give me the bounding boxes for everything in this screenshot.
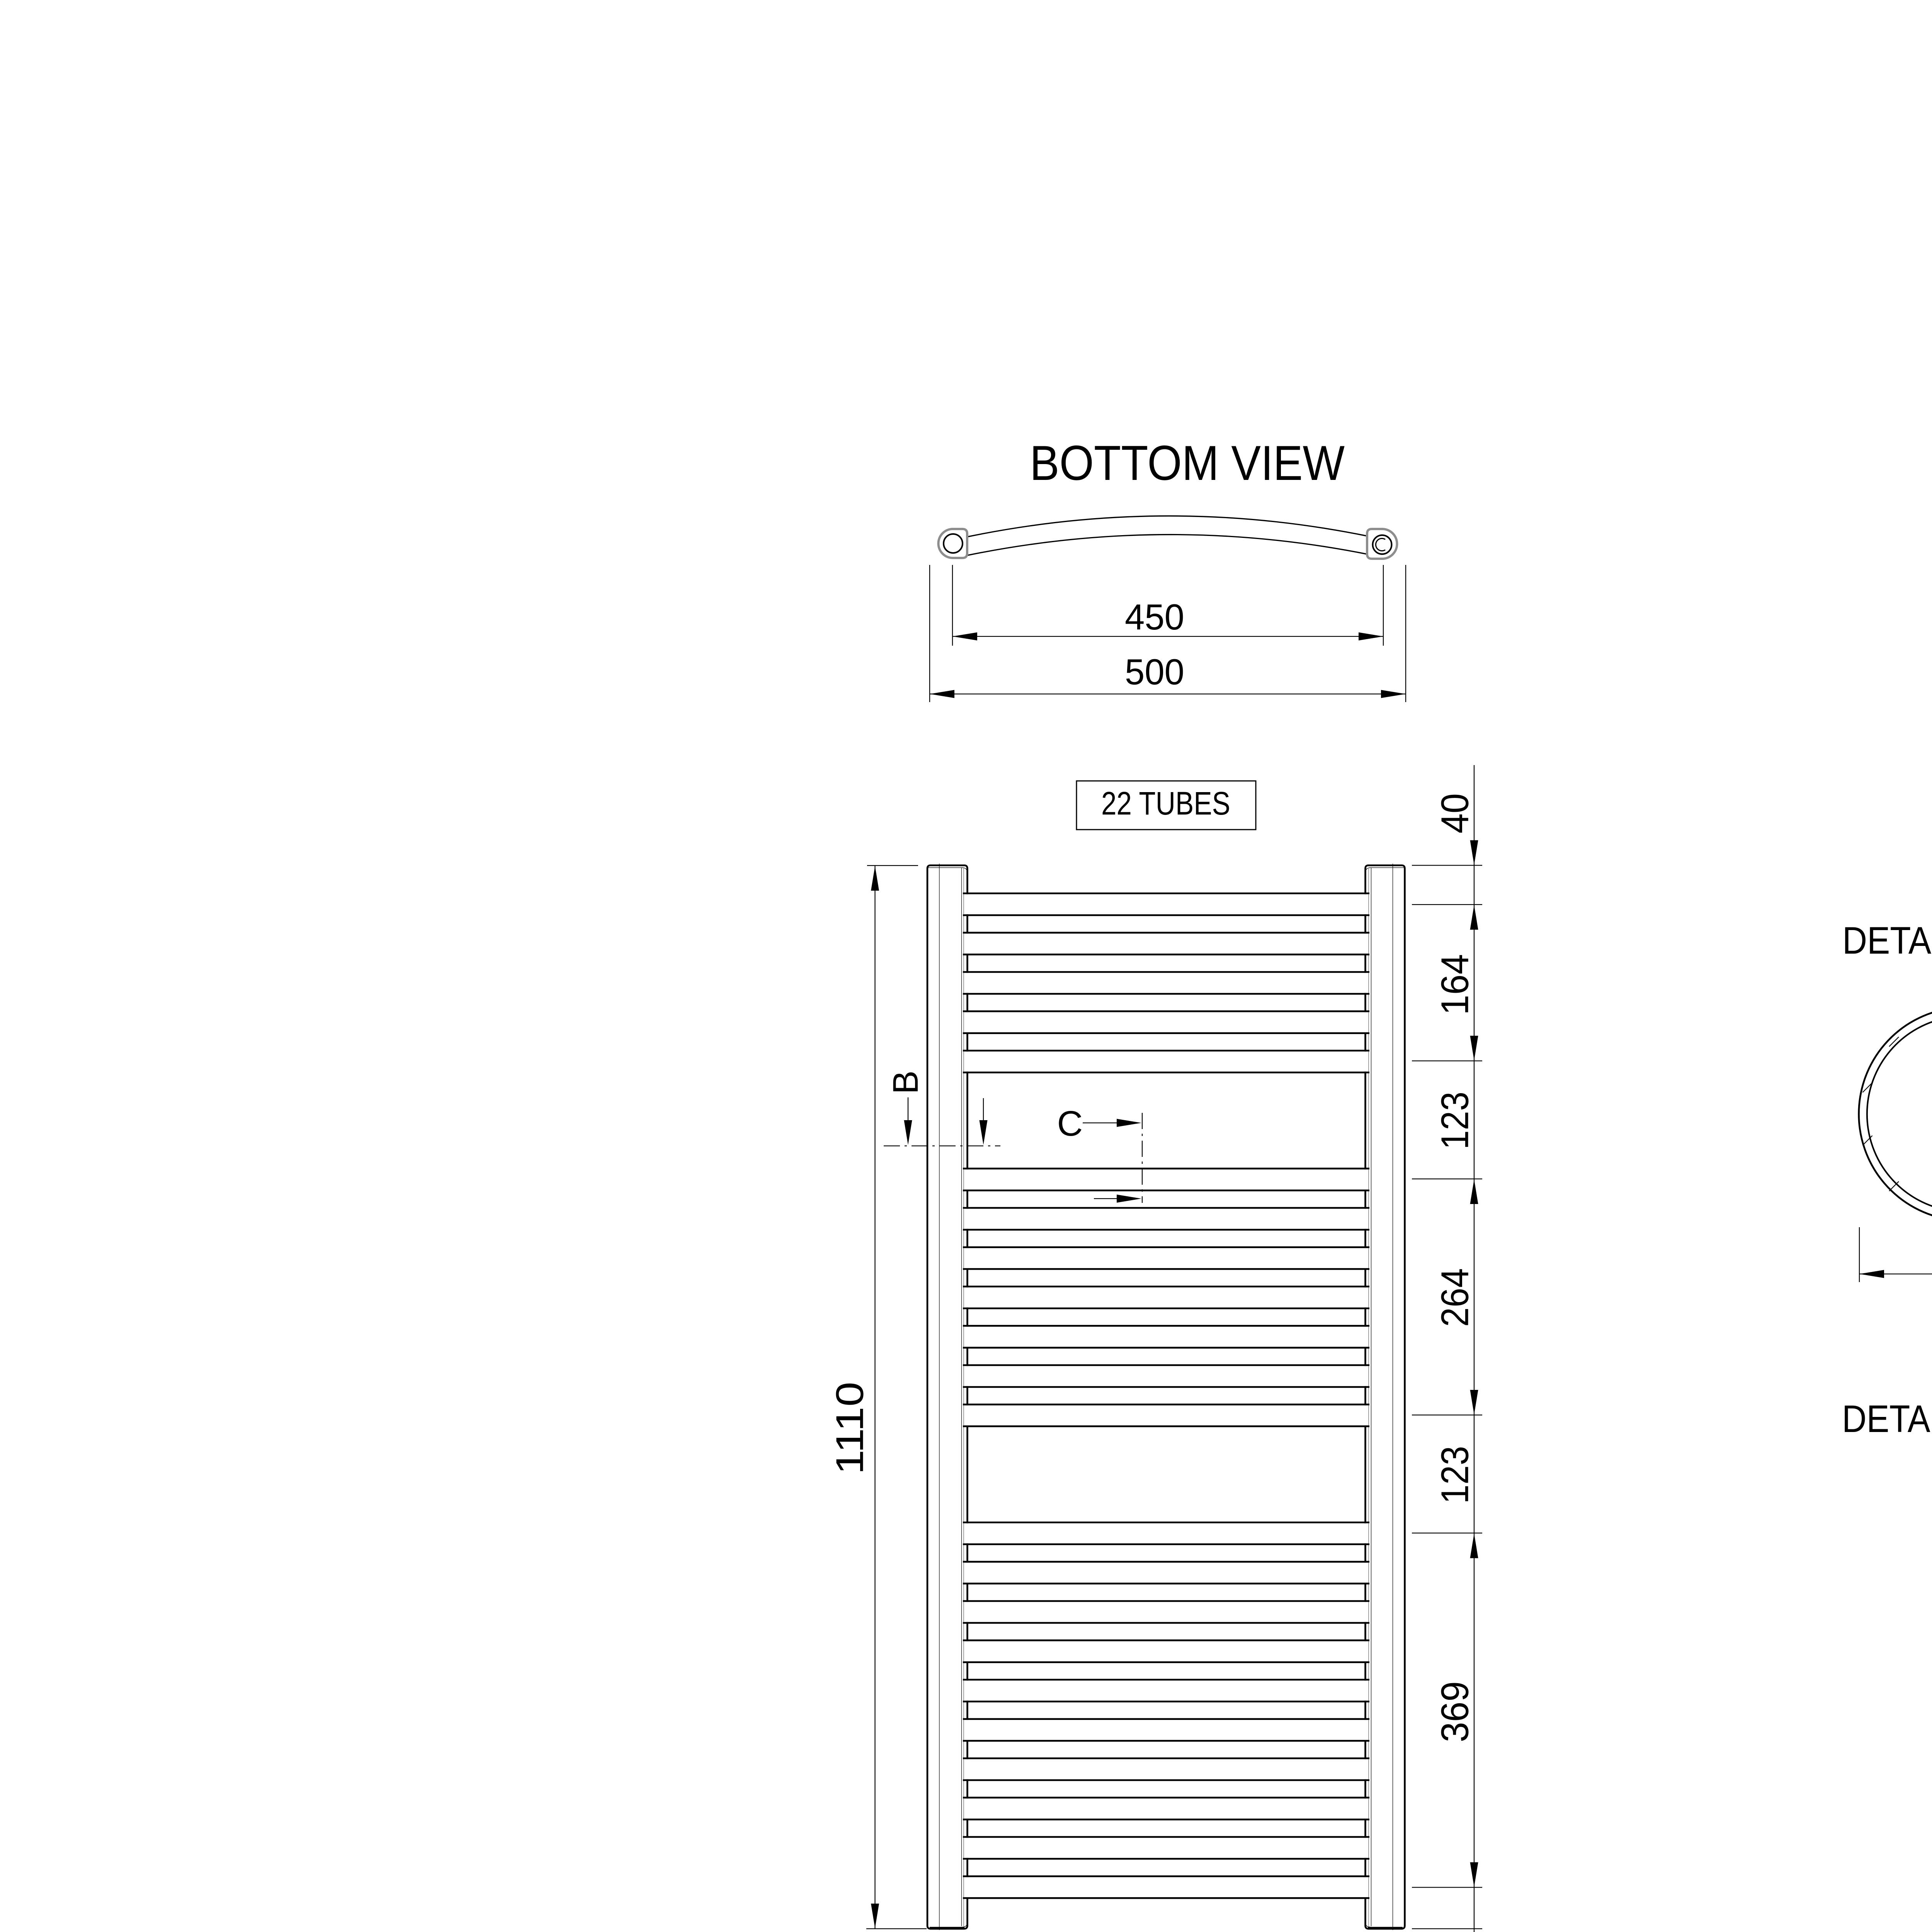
svg-text:164: 164: [1433, 954, 1476, 1015]
svg-text:40: 40: [1433, 793, 1476, 833]
svg-text:450: 450: [1125, 597, 1184, 637]
svg-text:BOTTOM VIEW: BOTTOM VIEW: [1030, 435, 1345, 490]
svg-text:369: 369: [1433, 1681, 1476, 1742]
svg-text:264: 264: [1433, 1268, 1476, 1327]
svg-text:DETAIL B - Profile Cut: DETAIL B - Profile Cut: [1842, 919, 1932, 962]
svg-text:1110: 1110: [828, 1382, 871, 1475]
svg-text:500: 500: [1125, 651, 1184, 692]
svg-text:123: 123: [1433, 1092, 1476, 1150]
svg-text:B: B: [886, 1070, 925, 1094]
svg-text:123: 123: [1433, 1446, 1476, 1504]
svg-text:C: C: [1057, 1104, 1083, 1143]
svg-text:22 TUBES: 22 TUBES: [1101, 785, 1230, 821]
svg-text:DETAIL C - Tube Cut: DETAIL C - Tube Cut: [1842, 1397, 1932, 1440]
